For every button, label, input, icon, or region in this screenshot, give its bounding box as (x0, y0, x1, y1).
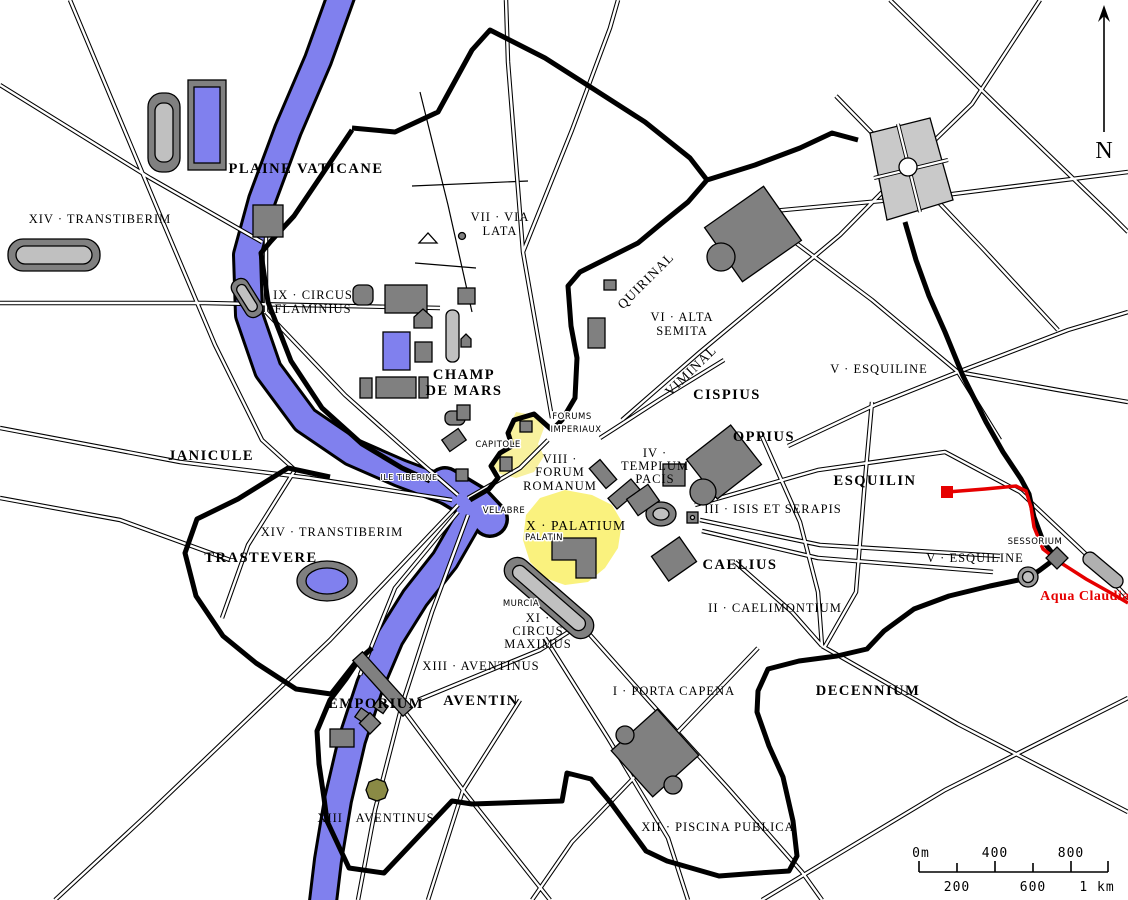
label-circus-flaminius-2: FLAMINIUS (274, 302, 351, 316)
mausoleum-block (353, 285, 373, 305)
label-piscina-publica: XII · PISCINA PUBLICA (641, 820, 794, 834)
label-templum-pacis-3: PACIS (635, 472, 674, 486)
label-murcia: MURCIA (503, 599, 539, 609)
label-aventin: AVENTIN (443, 693, 519, 709)
capitol-temple-b (500, 457, 512, 471)
label-esquiline-lower: V · ESQUILINE (926, 551, 1023, 565)
baths-diocletian-rotunda (707, 243, 735, 271)
label-plaine-vaticane: PLAINE VATICANE (228, 161, 383, 177)
obelisk-dot (459, 233, 466, 240)
hadrianeum-square (253, 205, 283, 237)
label-champ-de-mars-2: DE MARS (426, 383, 503, 399)
label-palatin: PALATIN (525, 533, 563, 543)
label-forum-romanum-2: FORUM (535, 465, 584, 479)
label-aventinus-lower: XIII · AVENTINUS (317, 811, 434, 825)
label-trastevere: TRASTEVERE (204, 550, 317, 566)
scale-label-400: 400 (982, 846, 1008, 861)
label-porta-capena: I · PORTA CAPENA (613, 684, 735, 698)
scale-label-800: 800 (1058, 846, 1084, 861)
rome-map-svg: PLAINE VATICANE XIV · TRANSTIBERIM IX · … (0, 0, 1128, 900)
label-transtiberim-top: XIV · TRANSTIBERIM (29, 212, 172, 226)
vatican-circus-inner (155, 103, 173, 162)
label-forum-romanum-3: ROMANUM (523, 479, 597, 493)
label-alta-semita-1: VI · ALTA (650, 310, 713, 324)
scale-label-200: 200 (944, 880, 970, 895)
caracalla-exedra-b (664, 776, 682, 794)
label-decennium: DECENNIUM (816, 683, 921, 699)
label-via-lata-2: LATA (483, 224, 518, 238)
label-aventinus-upper: XIII · AVENTINUS (422, 659, 539, 673)
campus-building-a (458, 288, 475, 304)
riverside-building-c (456, 469, 468, 481)
rome-map: PLAINE VATICANE XIV · TRANSTIBERIM IX · … (0, 0, 1128, 900)
scale-label-1km: 1 km (1079, 880, 1114, 895)
stagnum-basin (383, 332, 410, 370)
caracalla-exedra-a (616, 726, 634, 744)
scale-label-0m: 0m (912, 846, 930, 861)
label-esquilin: ESQUILIN (834, 473, 917, 489)
aqua-claudia-source-marker (941, 486, 953, 498)
label-janicule: JANICULE (168, 448, 254, 464)
label-sessorium: SESSORIUM (1008, 537, 1063, 547)
portico-row-b (376, 377, 416, 398)
label-templum-pacis-1: IV · (643, 446, 667, 460)
label-oppius: OPPIUS (733, 429, 795, 445)
arch-constantine-dot (691, 516, 695, 520)
riverside-building-a (457, 405, 470, 420)
label-caelimontium: II · CAELIMONTIUM (708, 601, 842, 615)
label-via-lata-1: VII · VIA (471, 210, 530, 224)
label-caelius: CAELIUS (703, 557, 778, 573)
label-champ-de-mars-1: CHAMP (433, 367, 495, 383)
trastevere-naumachia-basin (306, 568, 348, 594)
label-forums-imperiaux-1: FORUMS (552, 412, 591, 422)
label-circus-flaminius-1: IX · CIRCUS (273, 288, 353, 302)
horti-center-circle (899, 158, 917, 176)
transtiberim-stadium-inner (16, 246, 92, 264)
label-aqua-claudia: Aqua Claudia (1040, 589, 1128, 604)
portico-row-a (360, 378, 372, 398)
aventine-temple-octagon (366, 779, 388, 801)
capitol-temple-a (520, 421, 532, 432)
label-cispius: CISPIUS (693, 387, 761, 403)
label-palatium: X · PALATIUM (526, 518, 626, 533)
label-ile-tiberine: ILE TIBERINE (380, 473, 437, 482)
label-circus-maximus-2: CIRCUS (512, 624, 563, 638)
naumachia-basin (194, 87, 220, 163)
label-templum-pacis-2: TEMPLUM (621, 459, 689, 473)
baths-agrippa (385, 285, 427, 313)
label-transtiberim-lower: XIV · TRANSTIBERIM (261, 525, 404, 539)
label-forum-romanum-1: VIII · (543, 452, 578, 466)
label-esquiline-upper: V · ESQUILINE (830, 362, 927, 376)
campus-building-c (415, 342, 432, 362)
scale-label-600: 600 (1020, 880, 1046, 895)
label-velabre: VELABRE (483, 506, 526, 516)
wall-tower-circle-inner (1023, 572, 1034, 583)
label-alta-semita-2: SEMITA (656, 324, 708, 338)
label-circus-maximus-1: XI · (526, 611, 550, 625)
quirinal-building-b (588, 318, 605, 348)
quirinal-building-a (604, 280, 616, 290)
label-capitole: CAPITOLE (475, 440, 520, 450)
label-isis-et-serapis: III · ISIS ET SERAPIS (704, 502, 841, 516)
label-emporium: EMPORIUM (328, 696, 424, 712)
label-forums-imperiaux-2: IMPERIAUX (550, 425, 601, 435)
colosseum-arena (653, 508, 669, 520)
label-circus-maximus-3: MAXIMUS (504, 637, 571, 651)
aventine-building-a (330, 729, 354, 747)
stadium-domitian (446, 310, 459, 362)
north-label: N (1095, 138, 1112, 164)
